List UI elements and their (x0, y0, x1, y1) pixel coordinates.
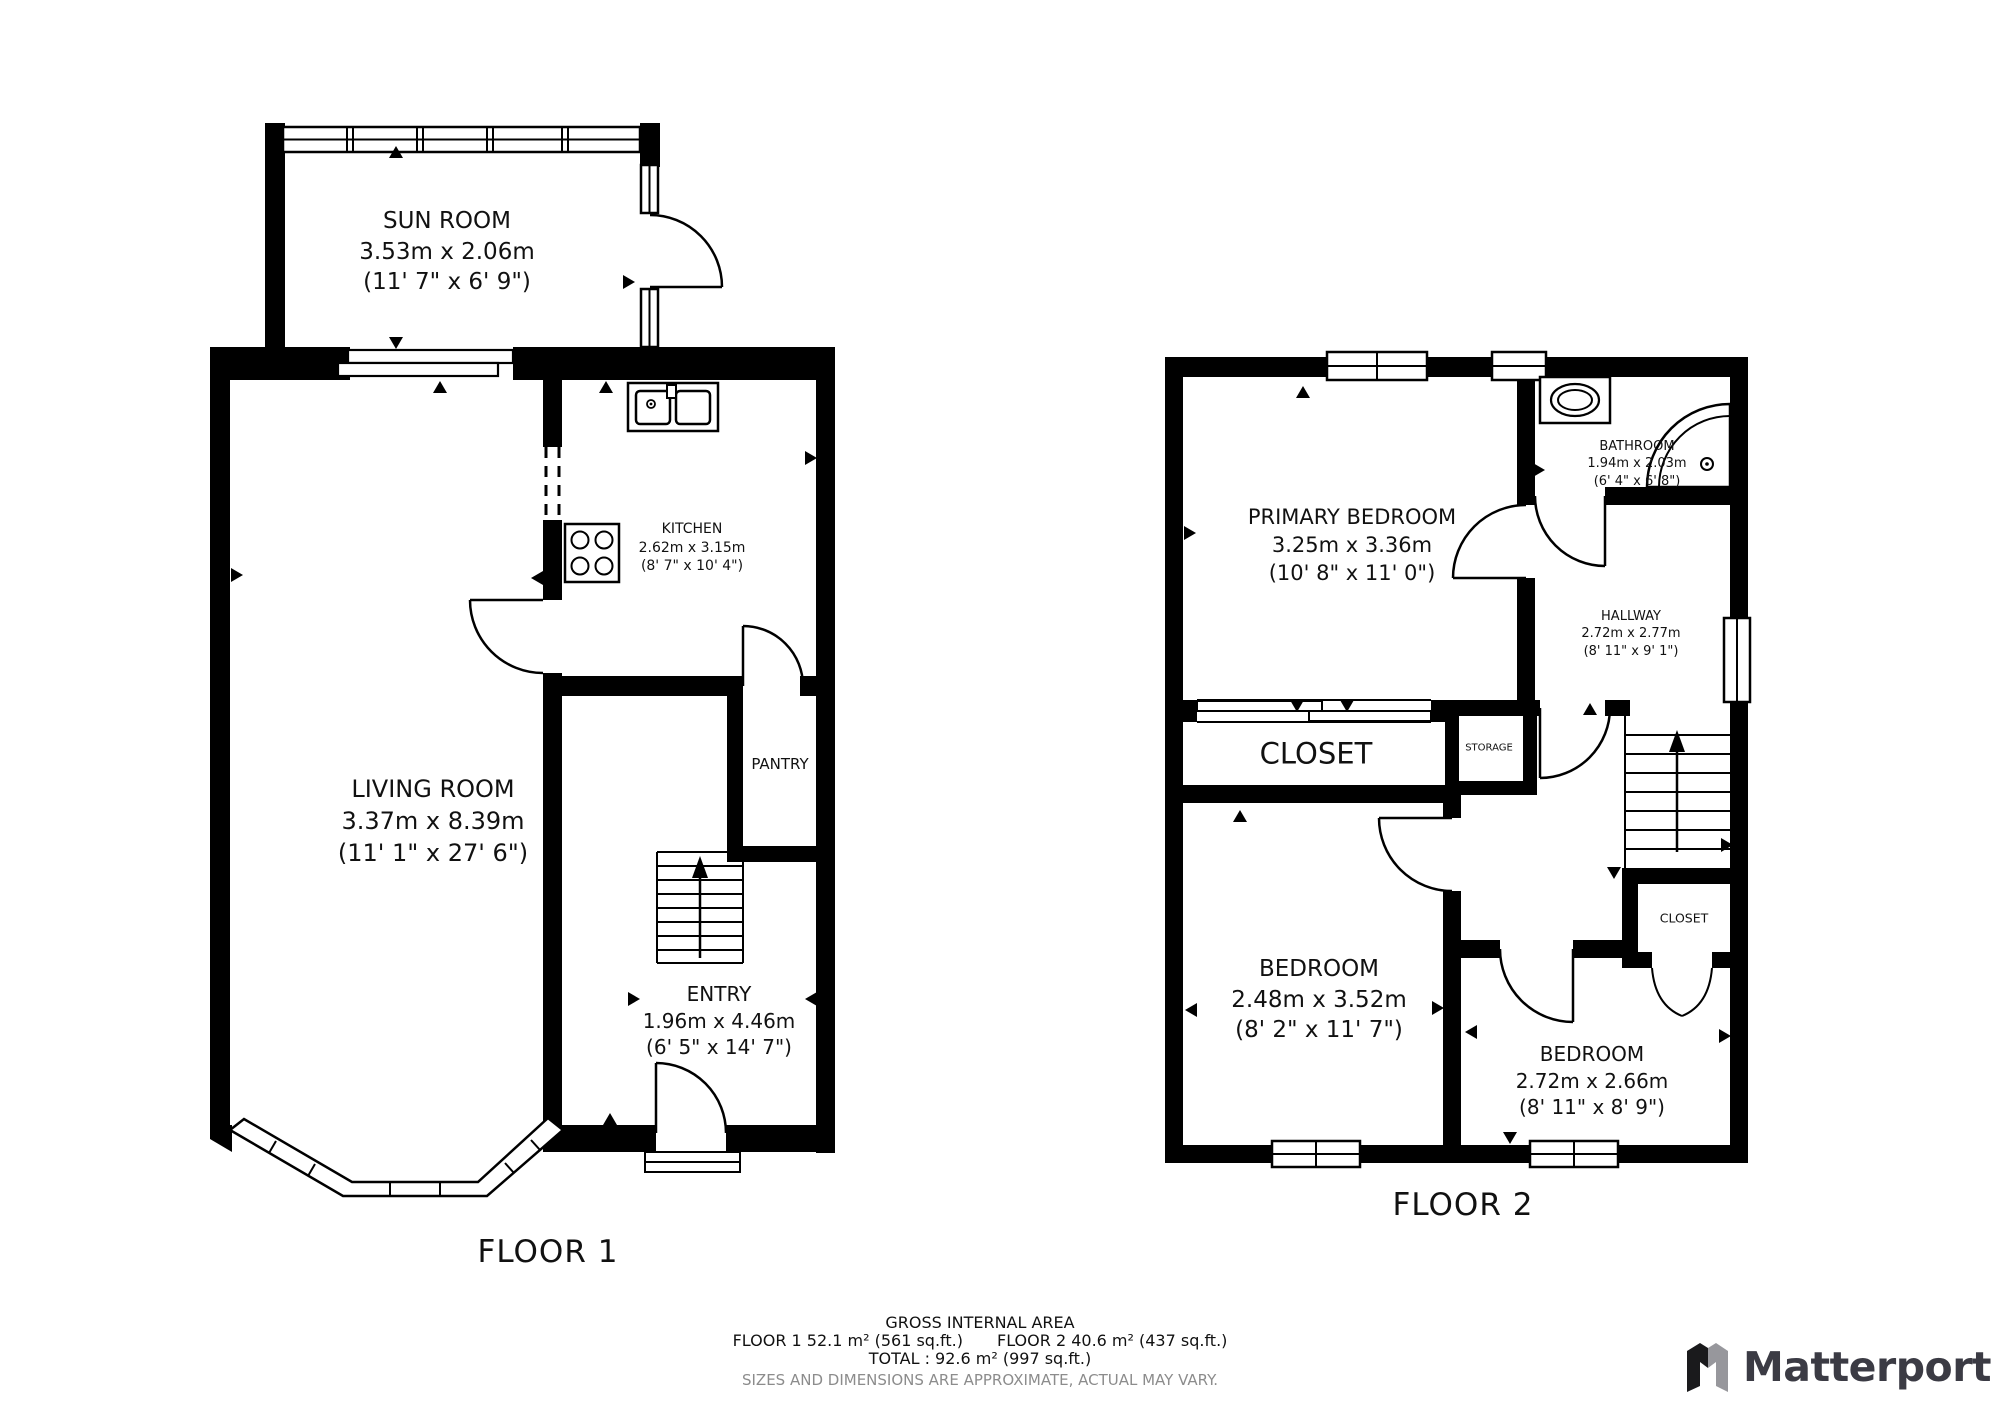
floor1-area: FLOOR 1 52.1 m² (561 sq.ft.) (733, 1331, 963, 1350)
room-dim-metric: 2.48m x 3.52m (1231, 985, 1406, 1016)
room-label-kitchen: KITCHEN 2.62m x 3.15m (8' 7" x 10' 4") (639, 520, 746, 576)
room-dim-imperial: (8' 7" x 10' 4") (639, 557, 746, 576)
room-label-bathroom: BATHROOM 1.94m x 2.03m (6' 4" x 6' 8") (1587, 438, 1686, 490)
room-dim-imperial: (6' 5" x 14' 7") (643, 1034, 796, 1061)
dashed-wall-opening (546, 447, 559, 520)
room-dim-metric: 2.62m x 3.15m (639, 539, 746, 558)
kitchen-sink-icon (628, 383, 718, 431)
room-label-primary-bedroom: PRIMARY BEDROOM 3.25m x 3.36m (10' 8" x … (1248, 504, 1456, 588)
stairs-down-icon (1625, 716, 1730, 868)
room-name: BEDROOM (1231, 954, 1406, 985)
stove-icon (565, 524, 619, 582)
closet-sliding-doors (1197, 700, 1431, 722)
room-dim-metric: 3.25m x 3.36m (1248, 532, 1456, 560)
room-dim-imperial: (10' 8" x 11' 0") (1248, 560, 1456, 588)
room-dim-metric: 2.72m x 2.77m (1581, 625, 1680, 642)
room-dim-imperial: (11' 7" x 6' 9") (359, 267, 534, 298)
room-label-pantry: PANTRY (751, 755, 808, 775)
sliding-door (338, 350, 513, 376)
room-dim-metric: 3.53m x 2.06m (359, 237, 534, 268)
floor2-title: FLOOR 2 (1393, 1187, 1534, 1223)
room-name: SUN ROOM (359, 206, 534, 237)
room-name: STORAGE (1465, 741, 1513, 754)
stairs-up-icon (657, 852, 743, 963)
room-name: CLOSET (1260, 735, 1373, 774)
room-label-closet: CLOSET (1260, 735, 1373, 774)
room-dim-metric: 3.37m x 8.39m (338, 806, 528, 838)
room-dim-imperial: (8' 11" x 9' 1") (1581, 643, 1680, 660)
porch-step (645, 1152, 740, 1172)
matterport-logo: Matterport (1684, 1340, 1991, 1394)
room-name: PANTRY (751, 755, 808, 775)
room-label-living-room: LIVING ROOM 3.37m x 8.39m (11' 1" x 27' … (338, 774, 528, 870)
total-area-line: TOTAL : 92.6 m² (997 sq.ft.) (580, 1350, 1380, 1368)
room-label-sun-room: SUN ROOM 3.53m x 2.06m (11' 7" x 6' 9") (359, 206, 534, 298)
gross-internal-area-block: GROSS INTERNAL AREA FLOOR 1 52.1 m² (561… (580, 1314, 1380, 1390)
room-name: LIVING ROOM (338, 774, 528, 806)
room-dim-metric: 1.94m x 2.03m (1587, 455, 1686, 472)
room-name: HALLWAY (1581, 608, 1680, 625)
matterport-wordmark: Matterport (1743, 1343, 1991, 1391)
room-name: ENTRY (643, 981, 796, 1008)
room-name: CLOSET (1660, 911, 1709, 928)
floor1-title: FLOOR 1 (478, 1234, 619, 1270)
room-dim-imperial: (8' 2" x 11' 7") (1231, 1015, 1406, 1046)
floorplan-canvas: SUN ROOM 3.53m x 2.06m (11' 7" x 6' 9") … (0, 0, 2000, 1414)
room-name: KITCHEN (639, 520, 746, 539)
room-name: PRIMARY BEDROOM (1248, 504, 1456, 532)
disclaimer-text: SIZES AND DIMENSIONS ARE APPROXIMATE, AC… (580, 1370, 1380, 1390)
gross-area-title: GROSS INTERNAL AREA (580, 1314, 1380, 1332)
floor2-area: FLOOR 2 40.6 m² (437 sq.ft.) (997, 1331, 1227, 1350)
room-dim-imperial: (11' 1" x 27' 6") (338, 838, 528, 870)
bay-window (230, 1118, 563, 1196)
room-label-bedroom-right: BEDROOM 2.72m x 2.66m (8' 11" x 8' 9") (1516, 1041, 1669, 1121)
floor-areas-line: FLOOR 1 52.1 m² (561 sq.ft.)FLOOR 2 40.6… (580, 1332, 1380, 1350)
matterport-m-icon (1684, 1340, 1731, 1394)
room-dim-metric: 1.96m x 4.46m (643, 1008, 796, 1035)
room-dim-imperial: (6' 4" x 6' 8") (1587, 473, 1686, 490)
room-label-hallway: HALLWAY 2.72m x 2.77m (8' 11" x 9' 1") (1581, 608, 1680, 660)
room-dim-imperial: (8' 11" x 8' 9") (1516, 1094, 1669, 1121)
room-label-entry: ENTRY 1.96m x 4.46m (6' 5" x 14' 7") (643, 981, 796, 1061)
room-label-storage: STORAGE (1465, 741, 1513, 754)
room-label-closet-small: CLOSET (1660, 911, 1709, 928)
bathroom-sink-icon (1540, 377, 1610, 423)
room-name: BEDROOM (1516, 1041, 1669, 1068)
room-dim-metric: 2.72m x 2.66m (1516, 1068, 1669, 1095)
room-label-bedroom-left: BEDROOM 2.48m x 3.52m (8' 2" x 11' 7") (1231, 954, 1406, 1046)
room-name: BATHROOM (1587, 438, 1686, 455)
